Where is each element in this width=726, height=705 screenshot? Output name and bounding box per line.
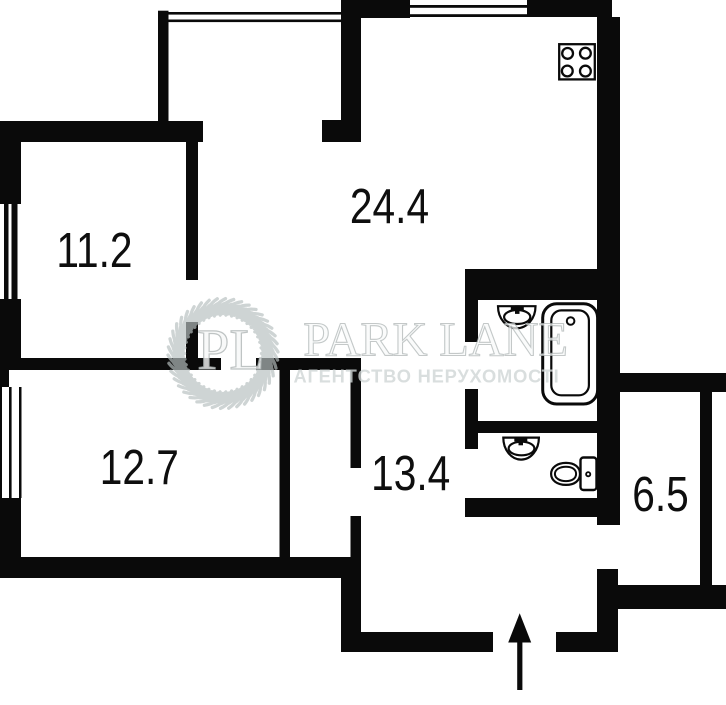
svg-text:PARK LANE: PARK LANE [303,314,568,367]
svg-text:24.4: 24.4 [350,178,429,233]
svg-text:PL: PL [197,317,265,382]
svg-text:11.2: 11.2 [56,222,132,277]
svg-text:АГЕНТСТВО НЕРУХОМОСТІ: АГЕНТСТВО НЕРУХОМОСТІ [294,366,560,387]
svg-text:13.4: 13.4 [371,445,450,500]
svg-text:6.5: 6.5 [632,466,689,521]
svg-text:12.7: 12.7 [100,439,179,494]
